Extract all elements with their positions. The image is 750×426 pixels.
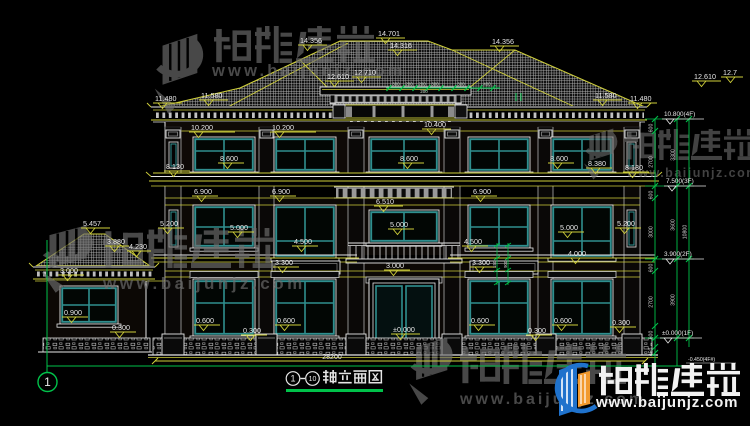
svg-text:3300: 3300 — [671, 149, 677, 161]
svg-text:-0.450(4F#): -0.450(4F#) — [688, 357, 715, 363]
svg-text:11.580: 11.580 — [201, 91, 222, 100]
svg-text:0.900: 0.900 — [64, 308, 82, 317]
svg-text:6.900: 6.900 — [272, 187, 290, 196]
svg-text:600: 600 — [649, 264, 655, 273]
svg-text:±0.000(1F): ±0.000(1F) — [662, 330, 693, 337]
svg-text:11.480: 11.480 — [155, 94, 176, 103]
svg-text:14.701: 14.701 — [378, 29, 400, 38]
svg-text:14.356: 14.356 — [492, 37, 514, 46]
svg-text:8.600: 8.600 — [220, 154, 238, 163]
svg-text:4.000: 4.000 — [568, 249, 586, 258]
svg-text:±0.000: ±0.000 — [393, 325, 415, 334]
svg-text:7.500(3F): 7.500(3F) — [666, 178, 694, 185]
svg-text:200: 200 — [418, 82, 426, 87]
svg-text:www.baijunjz.com: www.baijunjz.com — [595, 394, 738, 411]
svg-text:3900: 3900 — [671, 294, 677, 306]
svg-text:5.000: 5.000 — [390, 220, 408, 229]
svg-text:10800: 10800 — [683, 225, 689, 240]
svg-text:12.610: 12.610 — [694, 72, 716, 81]
svg-text:8.380: 8.380 — [588, 159, 606, 168]
svg-text:4.500: 4.500 — [294, 237, 312, 246]
svg-text:0.600: 0.600 — [277, 316, 295, 325]
svg-text:600: 600 — [649, 331, 655, 340]
svg-text:11.480: 11.480 — [630, 94, 651, 103]
svg-text:200: 200 — [420, 89, 428, 94]
svg-text:11.580: 11.580 — [595, 91, 616, 100]
svg-text:0.300: 0.300 — [528, 326, 546, 335]
svg-text:200: 200 — [405, 82, 413, 87]
svg-text:4.500: 4.500 — [464, 237, 482, 246]
svg-text:4.230: 4.230 — [129, 242, 147, 251]
svg-text:10.800(4F): 10.800(4F) — [664, 111, 695, 118]
svg-text:12.710: 12.710 — [354, 68, 376, 77]
svg-text:12.7: 12.7 — [723, 68, 737, 77]
svg-text:8.130: 8.130 — [166, 162, 184, 171]
svg-text:600: 600 — [649, 191, 655, 200]
svg-text:8.600: 8.600 — [400, 154, 418, 163]
svg-text:5.000: 5.000 — [560, 223, 578, 232]
svg-text:400: 400 — [483, 82, 491, 87]
svg-text:0.600: 0.600 — [196, 316, 214, 325]
svg-text:3600: 3600 — [671, 219, 677, 231]
svg-text:3.880: 3.880 — [107, 237, 125, 246]
svg-text:450: 450 — [649, 348, 655, 357]
svg-text:300: 300 — [457, 82, 465, 87]
svg-text:3000: 3000 — [649, 226, 655, 238]
svg-text:14.356: 14.356 — [300, 36, 322, 45]
svg-text:1: 1 — [290, 374, 295, 384]
svg-text:6.510: 6.510 — [376, 197, 394, 206]
svg-text:28200: 28200 — [322, 354, 342, 361]
svg-text:2700: 2700 — [649, 296, 655, 308]
svg-text:2700: 2700 — [649, 156, 655, 168]
svg-text:12.610: 12.610 — [327, 72, 349, 81]
svg-text:5.000: 5.000 — [230, 223, 248, 232]
svg-text:10.400: 10.400 — [424, 120, 446, 129]
svg-text:0.300: 0.300 — [243, 326, 261, 335]
svg-text:6.900: 6.900 — [194, 187, 212, 196]
svg-text:5.200: 5.200 — [160, 219, 178, 228]
svg-text:6.900: 6.900 — [473, 187, 491, 196]
svg-text:8.130: 8.130 — [625, 163, 643, 172]
svg-text:1: 1 — [44, 375, 51, 389]
svg-text:3.300: 3.300 — [472, 258, 490, 267]
svg-text:10.200: 10.200 — [191, 123, 213, 132]
svg-text:5.200: 5.200 — [617, 219, 635, 228]
svg-text:0.600: 0.600 — [554, 316, 572, 325]
svg-text:900: 900 — [503, 260, 508, 268]
svg-text:0.300: 0.300 — [612, 318, 630, 327]
svg-text:150: 150 — [492, 260, 497, 268]
svg-text:0.600: 0.600 — [471, 316, 489, 325]
svg-text:3.900(2F): 3.900(2F) — [664, 251, 692, 258]
svg-text:3.300: 3.300 — [275, 258, 293, 267]
svg-text:3.000: 3.000 — [60, 266, 78, 275]
svg-text:5.457: 5.457 — [83, 219, 101, 228]
svg-text:0.300: 0.300 — [112, 323, 130, 332]
svg-text:8.600: 8.600 — [550, 154, 568, 163]
svg-text:10: 10 — [309, 376, 317, 383]
svg-text:14.316: 14.316 — [390, 41, 412, 50]
svg-text:10.200: 10.200 — [272, 123, 294, 132]
svg-text:600: 600 — [649, 124, 655, 133]
svg-text:300: 300 — [431, 82, 439, 87]
svg-text:www.baijunjz.com: www.baijunjz.com — [102, 274, 306, 293]
svg-text:3.000: 3.000 — [386, 261, 404, 270]
svg-text:300: 300 — [392, 82, 400, 87]
